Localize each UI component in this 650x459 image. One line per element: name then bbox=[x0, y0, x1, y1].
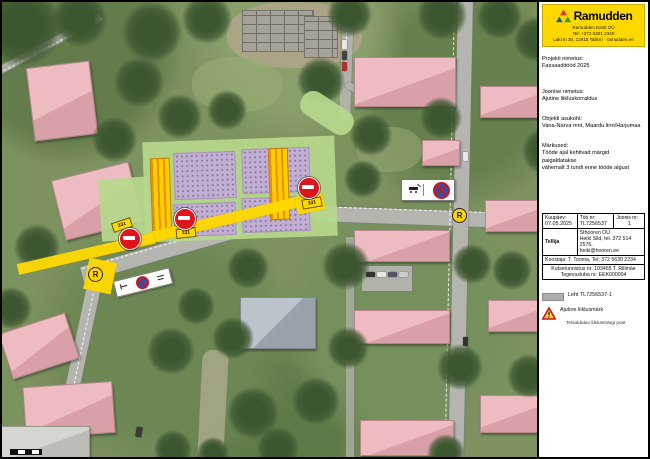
brand-box: Ramudden Ramudden Eesti OÜ Tel: +372 530… bbox=[542, 4, 645, 47]
building bbox=[26, 60, 99, 141]
tree-canopy bbox=[322, 242, 370, 290]
field-project-name: Projekti nimetus: Fassaaditööd 2025 bbox=[542, 56, 645, 71]
building bbox=[354, 310, 450, 344]
field-notes: Märkused: Tööde ajal kehtivad märgid pai… bbox=[542, 143, 645, 173]
field-object-location: Objekti asukoht: Vana-Narva mnt, Maardu … bbox=[542, 116, 645, 131]
tree-canopy bbox=[492, 250, 532, 290]
car bbox=[135, 427, 143, 438]
no-entry-sign bbox=[174, 208, 196, 230]
parking-area bbox=[173, 151, 237, 200]
tree-canopy bbox=[92, 117, 137, 162]
field-label: Märkused: bbox=[542, 143, 645, 151]
tree-canopy bbox=[2, 287, 32, 329]
no-entry-sign bbox=[119, 228, 141, 250]
tree-canopy bbox=[114, 57, 164, 107]
building bbox=[488, 300, 537, 332]
no-stopping-sign-panel bbox=[401, 179, 455, 201]
title-block-table: Kuupäev: 07.05.2025 Töö nr: TL7256537 Jo… bbox=[542, 213, 645, 280]
certificate-line: Tegevusluba nr: EEK000004 bbox=[545, 272, 642, 278]
tree-canopy bbox=[522, 127, 537, 175]
tree-canopy bbox=[507, 354, 537, 398]
legend-text: Leht TL7256537-1 bbox=[568, 292, 612, 298]
legend-item-temp-sign: Ajutine liiklusmärk bbox=[542, 307, 645, 320]
field-value: Fassaaditööd 2025 bbox=[542, 63, 645, 71]
tree-canopy bbox=[327, 327, 369, 369]
legend: Leht TL7256537-1 Ajutine liiklusmärk Tei… bbox=[542, 292, 645, 326]
date-value: 07.05.2025 bbox=[545, 221, 575, 227]
tow-away-icon bbox=[407, 184, 424, 196]
client-line: Heiki Sild, tel. 372 514 2576, bbox=[580, 236, 642, 248]
brand-name: Ramudden bbox=[574, 9, 633, 23]
title-block-panel: Ramudden Ramudden Eesti OÜ Tel: +372 530… bbox=[537, 2, 648, 457]
node-marker-r: R bbox=[88, 267, 103, 282]
client-line: heiki@hooren.ee bbox=[580, 248, 642, 254]
tree-canopy bbox=[177, 287, 215, 325]
car bbox=[399, 272, 408, 277]
no-parking-icon bbox=[135, 275, 151, 291]
car bbox=[377, 272, 386, 277]
field-value-line: vähemalt 3 tundi enne tööde algust bbox=[542, 165, 645, 173]
no-stopping-icon bbox=[433, 182, 450, 199]
building bbox=[480, 86, 537, 118]
aerial-map[interactable]: 331 331 331 R R bbox=[2, 2, 537, 457]
tree-canopy bbox=[157, 94, 202, 139]
tree-canopy bbox=[212, 317, 254, 359]
field-label: Projekti nimetus: bbox=[542, 56, 645, 64]
tree-canopy bbox=[207, 90, 247, 130]
work-zone-swatch-icon bbox=[542, 293, 564, 301]
field-value: Vana-Narva mnt, Maardu linn/Harjumaa bbox=[542, 123, 645, 131]
building bbox=[480, 395, 537, 433]
tree-canopy bbox=[147, 327, 195, 375]
tree-canopy bbox=[292, 377, 340, 425]
tree-canopy bbox=[344, 160, 382, 198]
car bbox=[463, 152, 468, 161]
car bbox=[366, 272, 375, 277]
brand-contact-line: Laki tn 30, 12915 Tallinn · ramudden.ee bbox=[545, 37, 642, 43]
no-parking-sign-panel bbox=[113, 267, 173, 298]
car bbox=[463, 337, 468, 346]
field-label: Joonise nimetus: bbox=[542, 89, 645, 97]
tree-canopy bbox=[197, 437, 229, 457]
tree-canopy bbox=[182, 2, 232, 44]
work-number-value: TL7256537 bbox=[580, 221, 612, 227]
legend-text: Ajutine liiklusmärk bbox=[560, 307, 603, 313]
no-entry-sign bbox=[298, 177, 320, 199]
text-glyph bbox=[156, 272, 168, 283]
building bbox=[422, 140, 460, 166]
field-value-line: Tööde ajal kehtivad märgid paigaldatakse bbox=[542, 150, 645, 165]
tree-canopy bbox=[154, 430, 192, 457]
legend-item-work-zone: Leht TL7256537-1 bbox=[542, 292, 645, 301]
building bbox=[485, 200, 537, 232]
car bbox=[342, 62, 347, 71]
car bbox=[388, 272, 397, 277]
tree-canopy bbox=[420, 97, 462, 139]
tree-canopy bbox=[452, 244, 492, 284]
tree-canopy bbox=[257, 427, 299, 457]
scale-bar bbox=[10, 449, 42, 455]
sheet-number-value: 1 bbox=[616, 221, 642, 227]
field-drawing-name: Joonise nimetus: Ajutine liikluskorraldu… bbox=[542, 89, 645, 104]
tree-canopy bbox=[122, 2, 182, 62]
client-label: Tellija bbox=[543, 229, 578, 256]
node-marker-r: R bbox=[452, 208, 467, 223]
tree-canopy bbox=[437, 344, 483, 390]
ramudden-logo-icon bbox=[555, 8, 572, 23]
car bbox=[342, 40, 347, 49]
legend-subtext: Teisaldatav liiklusmärgi post bbox=[566, 321, 645, 326]
field-value: Ajutine liikluskorraldus bbox=[542, 96, 645, 104]
arrow-glyph bbox=[118, 282, 130, 293]
author-row: Koostaja: T. Tooma, Tel: 372 5630 2234 bbox=[543, 256, 645, 265]
warning-triangle-icon bbox=[542, 307, 556, 320]
ta-plan-document: 331 331 331 R R bbox=[0, 0, 650, 459]
field-label: Objekti asukoht: bbox=[542, 116, 645, 124]
car bbox=[342, 51, 347, 60]
tree-canopy bbox=[227, 247, 269, 289]
tree-canopy bbox=[350, 114, 392, 156]
